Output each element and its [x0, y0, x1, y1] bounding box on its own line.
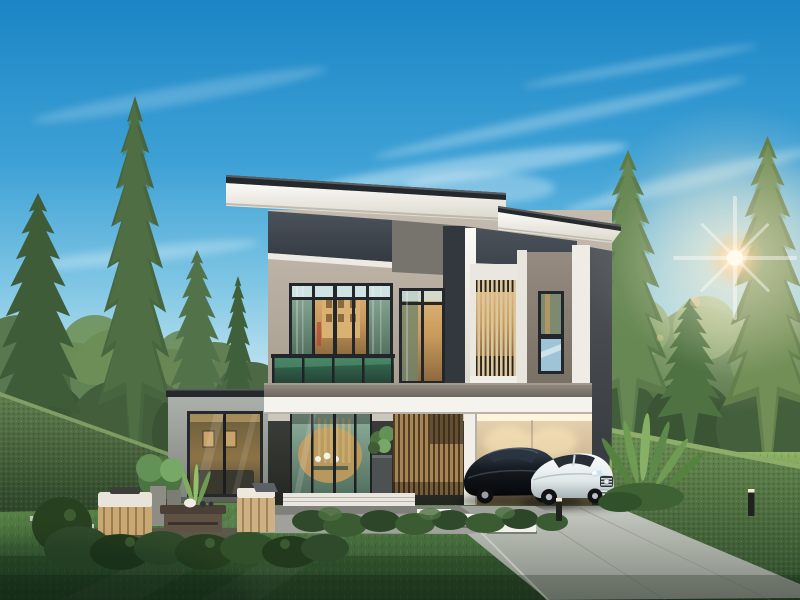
timber-slat-wall	[393, 414, 463, 495]
sofa-left	[98, 487, 152, 535]
balcony-window	[289, 283, 393, 359]
porch-glass-wall	[290, 414, 372, 495]
scene-svg	[0, 0, 800, 600]
cube-seat	[237, 483, 278, 532]
narrow-window	[538, 291, 564, 374]
porch-planter	[368, 426, 395, 497]
annex-glass-door	[190, 414, 260, 494]
sedan-grille	[600, 476, 613, 487]
render-canvas	[0, 0, 800, 600]
middle-window	[399, 288, 445, 384]
floor-band	[264, 383, 592, 415]
porch	[268, 414, 477, 505]
louver-screen	[470, 264, 522, 397]
